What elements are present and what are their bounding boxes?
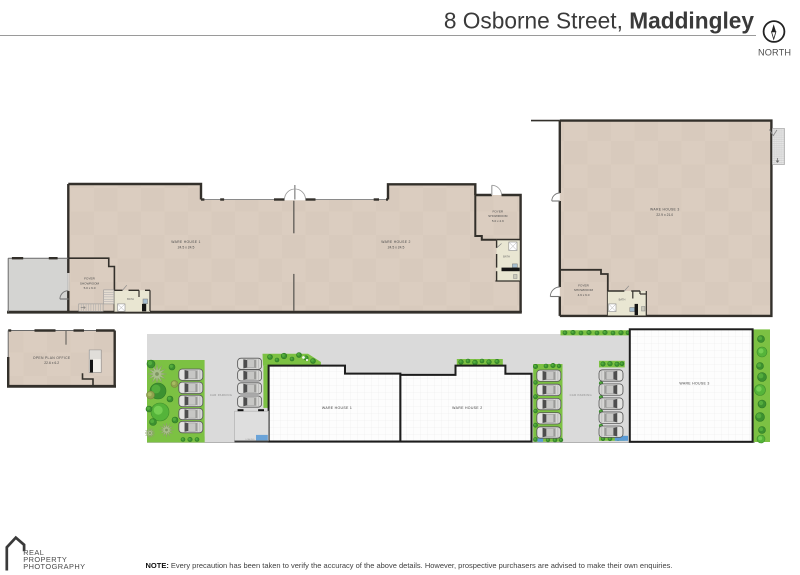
svg-text:24.5 x 24.5: 24.5 x 24.5 — [178, 245, 195, 249]
svg-text:FOYER: FOYER — [492, 209, 503, 213]
svg-text:NOTE: Every precaution has bee: NOTE: Every precaution has been taken to… — [146, 561, 673, 570]
svg-text:BATH: BATH — [619, 298, 626, 302]
svg-text:WARE HOUSE 1: WARE HOUSE 1 — [322, 406, 352, 410]
svg-text:SHOWROOM: SHOWROOM — [488, 214, 508, 218]
svg-text:5.0 x 4.9: 5.0 x 4.9 — [492, 219, 504, 223]
svg-text:5.0 x 6.0: 5.0 x 6.0 — [84, 286, 96, 290]
svg-text:24.5 x 24.5: 24.5 x 24.5 — [388, 245, 405, 249]
svg-text:LOADING: LOADING — [245, 438, 254, 441]
svg-text:8 Osborne Street, Maddingley: 8 Osborne Street, Maddingley — [444, 8, 755, 34]
svg-text:CAR PARKING: CAR PARKING — [570, 393, 592, 397]
svg-text:OPEN PLAN OFFICE: OPEN PLAN OFFICE — [33, 356, 71, 360]
svg-text:SHOWROOM: SHOWROOM — [80, 281, 100, 285]
svg-text:FOYER: FOYER — [578, 283, 589, 287]
svg-text:WARE HOUSE 2: WARE HOUSE 2 — [452, 406, 482, 410]
svg-text:BATH: BATH — [503, 254, 510, 258]
svg-text:FOYER: FOYER — [84, 277, 95, 281]
svg-text:WARE HOUSE 1: WARE HOUSE 1 — [171, 240, 200, 244]
svg-text:NORTH: NORTH — [758, 48, 791, 58]
svg-text:WARE HOUSE 3: WARE HOUSE 3 — [679, 382, 709, 386]
svg-text:BATH: BATH — [127, 297, 134, 301]
svg-text:22.9 x 21.0: 22.9 x 21.0 — [656, 213, 673, 217]
svg-text:22.6 x 6.2: 22.6 x 6.2 — [44, 361, 59, 365]
svg-text:PHOTOGRAPHY: PHOTOGRAPHY — [23, 562, 85, 571]
svg-text:4.9 x 6.0: 4.9 x 6.0 — [578, 293, 590, 297]
svg-text:WARE HOUSE 3: WARE HOUSE 3 — [650, 208, 679, 212]
svg-text:CAR PARKING: CAR PARKING — [210, 393, 232, 397]
svg-text:SHOWROOM: SHOWROOM — [574, 288, 594, 292]
svg-text:WARE HOUSE 2: WARE HOUSE 2 — [381, 240, 410, 244]
